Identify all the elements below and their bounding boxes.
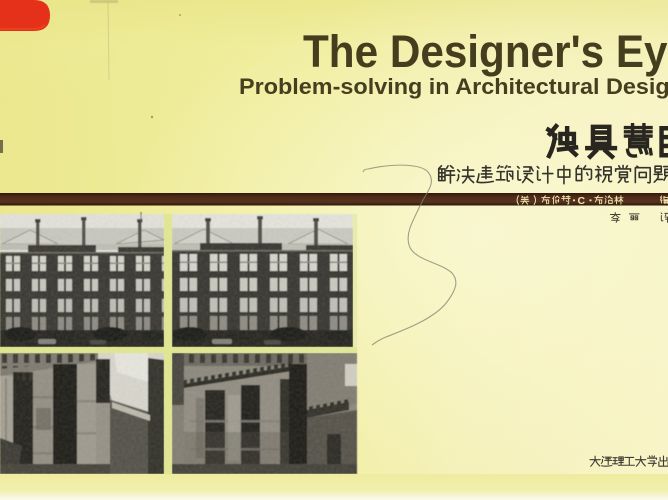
svg-text:The Designer's Eye: The Designer's Eye bbox=[303, 26, 668, 77]
svg-text:Problem-solving in Architectur: Problem-solving in Architectural Design bbox=[239, 74, 668, 99]
svg-text:C: C bbox=[578, 195, 586, 207]
